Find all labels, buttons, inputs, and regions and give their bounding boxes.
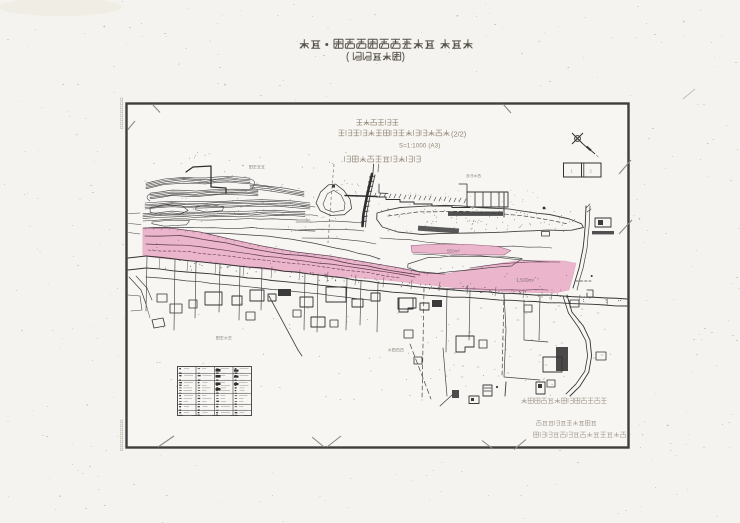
svg-text:1,500m²: 1,500m² <box>516 278 535 284</box>
svg-text:(2/2): (2/2) <box>451 130 466 139</box>
svg-text:550m²: 550m² <box>447 249 460 254</box>
svg-text:S=1:1000 (A3): S=1:1000 (A3) <box>399 144 440 150</box>
